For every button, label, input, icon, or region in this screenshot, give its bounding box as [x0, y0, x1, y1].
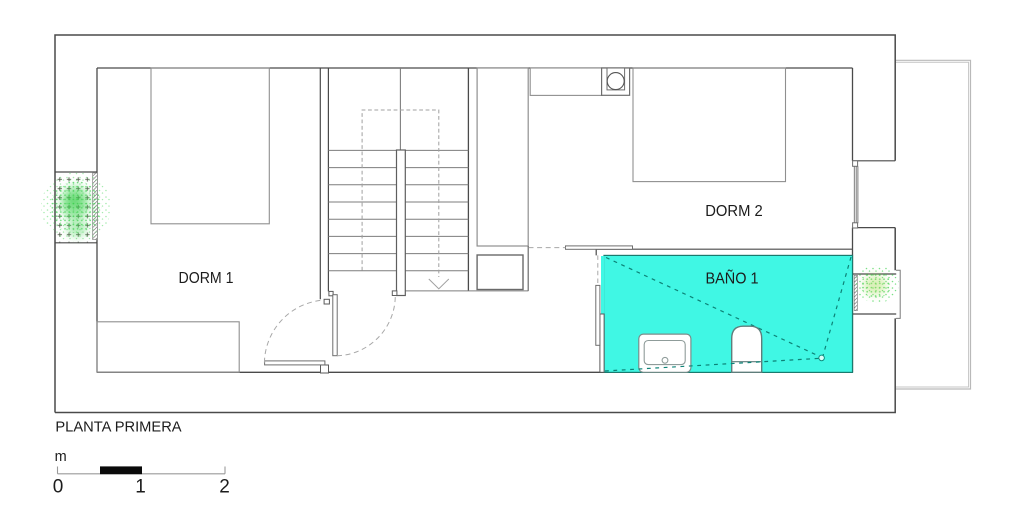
svg-text:DORM 1: DORM 1: [179, 270, 234, 287]
svg-text:0: 0: [53, 476, 64, 497]
svg-text:1: 1: [135, 476, 146, 497]
svg-text:DORM 2: DORM 2: [705, 203, 763, 220]
svg-text:BAÑO 1: BAÑO 1: [706, 267, 759, 287]
svg-text:2: 2: [219, 476, 230, 497]
svg-text:PLANTA PRIMERA: PLANTA PRIMERA: [55, 419, 182, 436]
svg-text:m: m: [55, 449, 67, 465]
